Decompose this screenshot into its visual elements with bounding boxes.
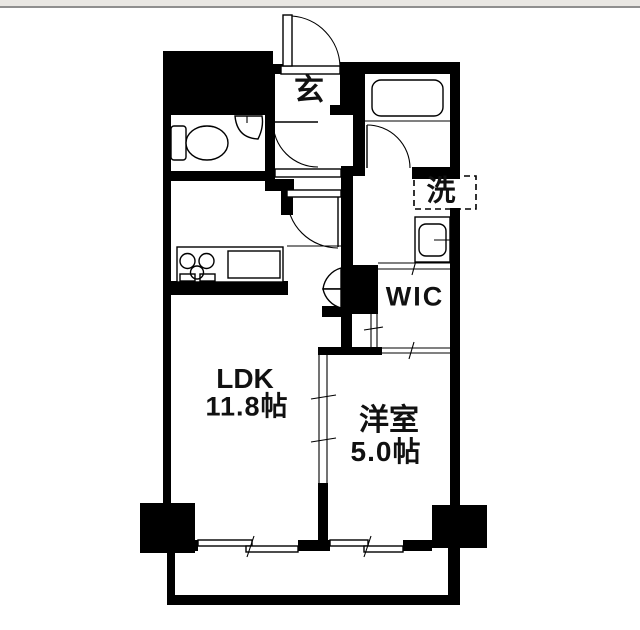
bathroom-door-arc [367, 125, 410, 168]
entrance-door-arc [292, 16, 340, 66]
partition-tick-1 [311, 395, 336, 399]
bifold-door-leaf-bottom [323, 289, 341, 308]
partition-solid-wall [318, 483, 328, 542]
pillar-right [432, 505, 487, 548]
laundry-label: 洗 [426, 178, 455, 207]
right-outer-wall-lower [450, 208, 460, 548]
bedroom-window-pane-2 [364, 546, 403, 552]
corner-hand-basin [235, 116, 263, 139]
pillar-left [140, 503, 195, 553]
bathtub [372, 80, 443, 116]
partition-tick-2 [311, 438, 336, 442]
right-outer-wall-upper [450, 62, 460, 178]
hall-bath-divider [353, 64, 365, 168]
bedroom-top-wall [318, 347, 382, 355]
bottom-wall-seg3 [403, 540, 432, 551]
wall-step-a [265, 179, 294, 191]
bedroom-window-pane-1 [330, 540, 368, 546]
ldk-window-pane-2 [246, 546, 298, 552]
kitchen-sink [228, 251, 280, 278]
left-outer-wall [163, 51, 171, 553]
bifold-door-leaf-top [323, 268, 341, 289]
ldk-window-pane-1 [198, 540, 252, 546]
entrance-sill [281, 66, 340, 74]
toilet-tank [171, 126, 186, 160]
ldk-door-arc [287, 197, 338, 248]
wic-label: WIC [386, 284, 444, 311]
washroom-left-wall [341, 168, 353, 267]
balcony-rail-left [167, 551, 175, 597]
hall-step-sill [275, 169, 341, 177]
entrance-label: 玄 [294, 76, 324, 106]
toilet-bowl [186, 126, 228, 160]
bottom-wall-seg2 [298, 540, 330, 551]
balcony-rail-bottom [167, 595, 460, 605]
hall-door-arc [273, 122, 318, 167]
wic-bottom-tick [409, 342, 414, 359]
solid-core-block [163, 51, 273, 115]
balcony-rail-right [448, 547, 460, 605]
bedroom-name-label: 洋室 [359, 406, 419, 436]
entrance-door-leaf [283, 15, 292, 66]
floor-plan-canvas: 玄 洗 WIC LDK 11.8帖 洋室 5.0帖 [0, 0, 640, 630]
bedroom-size-label: 5.0帖 [351, 438, 422, 466]
kitchen-counter-front [163, 281, 288, 295]
wic-left-tick [364, 327, 383, 330]
toilet-bottom-wall [163, 171, 275, 181]
wic-left-wall [341, 314, 352, 349]
ldk-door-threshold [287, 190, 341, 197]
ldk-size-label: 11.8帖 [205, 394, 288, 421]
ldk-name-label: LDK [216, 365, 274, 393]
